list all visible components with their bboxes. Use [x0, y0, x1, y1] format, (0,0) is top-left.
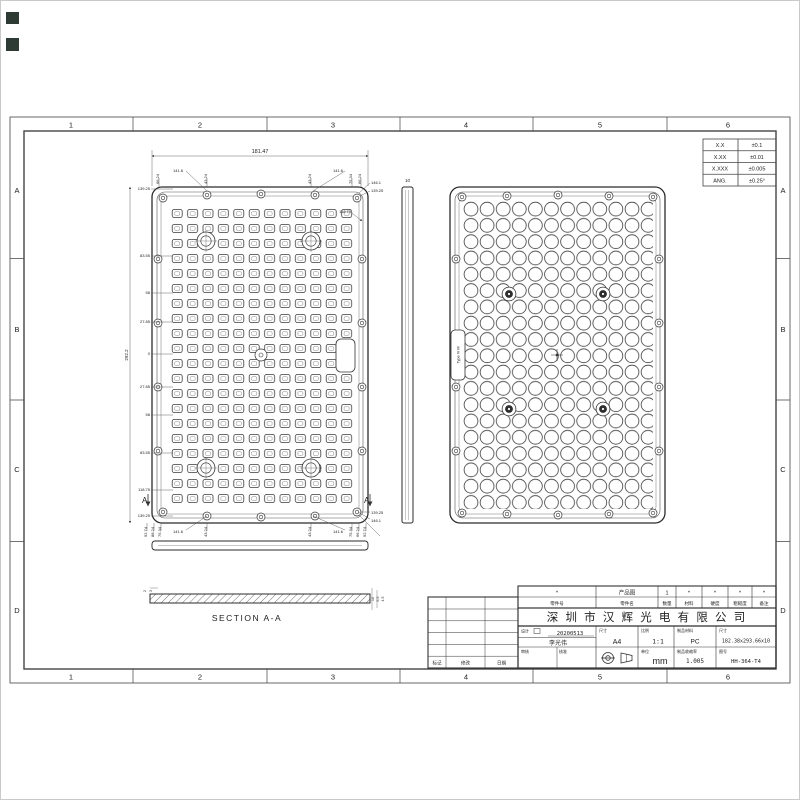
- dim-right: 146.1: [371, 518, 382, 523]
- dim-bottom: 75.34: [157, 526, 162, 537]
- dim-right: 139.25: [371, 510, 384, 515]
- hdr-value: 产品图: [619, 589, 636, 597]
- unit-value: mm: [653, 656, 668, 666]
- dim-bottom: 88.24: [150, 526, 155, 537]
- hdr-label: 数量: [663, 600, 672, 607]
- zone-row: D: [780, 606, 786, 615]
- dim-bottom: 43.24: [307, 526, 312, 537]
- section-dim: 4.5: [381, 597, 385, 602]
- zone-row: B: [14, 325, 19, 334]
- dim-thickness: 10: [405, 178, 411, 183]
- hdr-value: *: [688, 591, 691, 597]
- section-view: 2 3 10 6.5 4.5 SECTION A-A: [143, 588, 385, 623]
- dim-top: 43.24: [203, 173, 208, 184]
- dimensions-value: 182.38x293.66x10: [722, 639, 770, 645]
- field-label: 核准: [559, 648, 567, 654]
- dim-bottom: 66.24: [355, 526, 360, 537]
- hdr-value: *: [556, 591, 559, 597]
- dim-total-width: 181.47: [252, 149, 269, 155]
- hdr-label: 零件名: [620, 600, 634, 607]
- zone-col: 4: [464, 121, 468, 130]
- section-dim: 3: [149, 590, 153, 592]
- zone-col: 2: [198, 121, 202, 130]
- hdr-label: 材料: [685, 600, 694, 607]
- dim-left: 58: [146, 290, 151, 295]
- tol-value: ±0.01: [750, 155, 764, 161]
- tol-label: X.XX: [714, 155, 727, 161]
- zone-col: 1: [69, 673, 73, 682]
- hdr-label: 备注: [760, 600, 769, 607]
- dim-left: 139.25: [138, 186, 151, 191]
- rev-label: 日期: [497, 661, 506, 667]
- zone-row: C: [14, 465, 20, 474]
- tol-label: X.X: [716, 143, 725, 149]
- dim-top: 66.24: [155, 173, 160, 184]
- dim-left: 139.25: [138, 513, 151, 518]
- field-label: 尺寸: [719, 627, 727, 633]
- zone-col: 6: [726, 673, 730, 682]
- paper-size: A4: [613, 639, 622, 646]
- tol-value: ±0.005: [749, 167, 766, 173]
- hdr-value: *: [739, 591, 742, 597]
- scale-value: 1:1: [652, 638, 664, 646]
- tolerance-table: X.X ±0.1 X.XX ±0.01 X.XXX ±0.005 ANG. ±0…: [703, 139, 776, 186]
- connector-cutout: [336, 339, 355, 372]
- hdr-label: 零件号: [550, 600, 564, 607]
- sheet-frame: [10, 117, 790, 683]
- dim-bottom: 92.74: [362, 526, 367, 537]
- field-label: 尺寸: [599, 627, 607, 633]
- revision-table: 标记 修改 日期: [428, 597, 518, 668]
- field-label: 设计: [521, 628, 529, 634]
- dim-bottom: 75.34: [348, 526, 353, 537]
- dim-bottom: 92.74: [143, 526, 148, 537]
- zone-col: 6: [726, 121, 730, 130]
- dim-right: 146.1: [371, 180, 382, 185]
- dim-total-height: 292.2: [124, 349, 129, 361]
- field-label: 单位: [641, 648, 649, 654]
- projection-symbol-icon: [601, 653, 632, 664]
- dim-left: 83.55: [140, 450, 151, 455]
- hdr-value: *: [714, 591, 717, 597]
- dim-top: 75.34: [348, 173, 353, 184]
- drawing-sheet: 1 2 3 4 5 6 1 2 3 4 5 6 A B C D A B C D: [0, 0, 800, 800]
- dim-left: 0: [148, 351, 151, 356]
- dim-right: 139.25: [371, 188, 384, 193]
- zone-row: A: [780, 186, 785, 195]
- drawing-number: HH-364-T4: [731, 659, 761, 665]
- zone-col: 2: [198, 673, 202, 682]
- company-name: 深 圳 市 汉 辉 光 电 有 限 公 司: [547, 610, 747, 624]
- zone-col: 3: [331, 673, 335, 682]
- dim-left: 58: [146, 412, 151, 417]
- dim-left: 27.85: [140, 319, 151, 324]
- zone-col: 3: [331, 121, 335, 130]
- zone-row: B: [780, 325, 785, 334]
- dim-leader: 141.6: [333, 168, 344, 173]
- zone-row: C: [780, 465, 786, 474]
- zone-col: 5: [598, 121, 602, 130]
- section-dim: 2: [143, 590, 147, 592]
- section-title: SECTION A-A: [212, 613, 282, 623]
- title-block: * 产品图 1 * * * * 零件号 零件名 数量 材料 硬度 粗糙度 备注 …: [428, 586, 776, 668]
- dim-top: 43.24: [307, 173, 312, 184]
- designer-name: 李光伟: [549, 639, 567, 647]
- dim-top: 66.24: [357, 173, 362, 184]
- dim-bottom: 43.24: [203, 526, 208, 537]
- tol-label: X.XXX: [712, 167, 729, 173]
- dim-leader: 141.6: [173, 529, 184, 534]
- drawing-canvas: 1 2 3 4 5 6 1 2 3 4 5 6 A B C D A B C D: [0, 0, 800, 800]
- rev-label: 修改: [461, 660, 470, 667]
- zone-col: 1: [69, 121, 73, 130]
- zone-col: 5: [598, 673, 602, 682]
- tol-value: ±0.1: [752, 143, 763, 149]
- zone-row: A: [14, 186, 19, 195]
- rev-label: 标记: [433, 660, 442, 667]
- dim-left: 83.55: [140, 253, 151, 258]
- dim-leader: 141.6: [173, 168, 184, 173]
- dim-left: 118.75: [138, 487, 151, 492]
- tol-label: ANG.: [713, 178, 727, 184]
- hdr-value: 1: [665, 591, 668, 597]
- section-dim: 10: [371, 597, 375, 601]
- back-view: Type IV M: [450, 187, 665, 523]
- material-value: PC: [690, 639, 699, 646]
- front-view: [152, 187, 368, 523]
- zone-col: 4: [464, 673, 468, 682]
- tol-value: ±0.25°: [749, 178, 765, 184]
- hdr-value: *: [763, 591, 766, 597]
- field-label: 图号: [719, 648, 727, 654]
- dim-leader: 141.6: [333, 529, 344, 534]
- shrinkage-value: 1.005: [686, 658, 704, 665]
- field-label: 制品收缩率: [677, 648, 697, 654]
- field-label: 比例: [641, 627, 649, 633]
- design-date: 20200513: [557, 631, 584, 637]
- section-letter: A: [364, 496, 370, 505]
- section-dim: 6.5: [376, 597, 380, 602]
- side-view: 10: [402, 178, 413, 523]
- zone-row: D: [14, 606, 20, 615]
- hdr-label: 粗糙度: [733, 600, 747, 607]
- dim-left: 27.85: [140, 384, 151, 389]
- field-label: 制品材料: [677, 627, 693, 633]
- section-letter: A: [142, 496, 148, 505]
- type-label-tab: Type IV M: [451, 330, 465, 380]
- field-label: 审核: [521, 648, 529, 654]
- hdr-label: 硬度: [711, 600, 720, 607]
- dim-interior: 118.75: [339, 209, 352, 214]
- lens-type-label: Type IV M: [457, 346, 461, 363]
- bottom-edge-view: [152, 541, 368, 550]
